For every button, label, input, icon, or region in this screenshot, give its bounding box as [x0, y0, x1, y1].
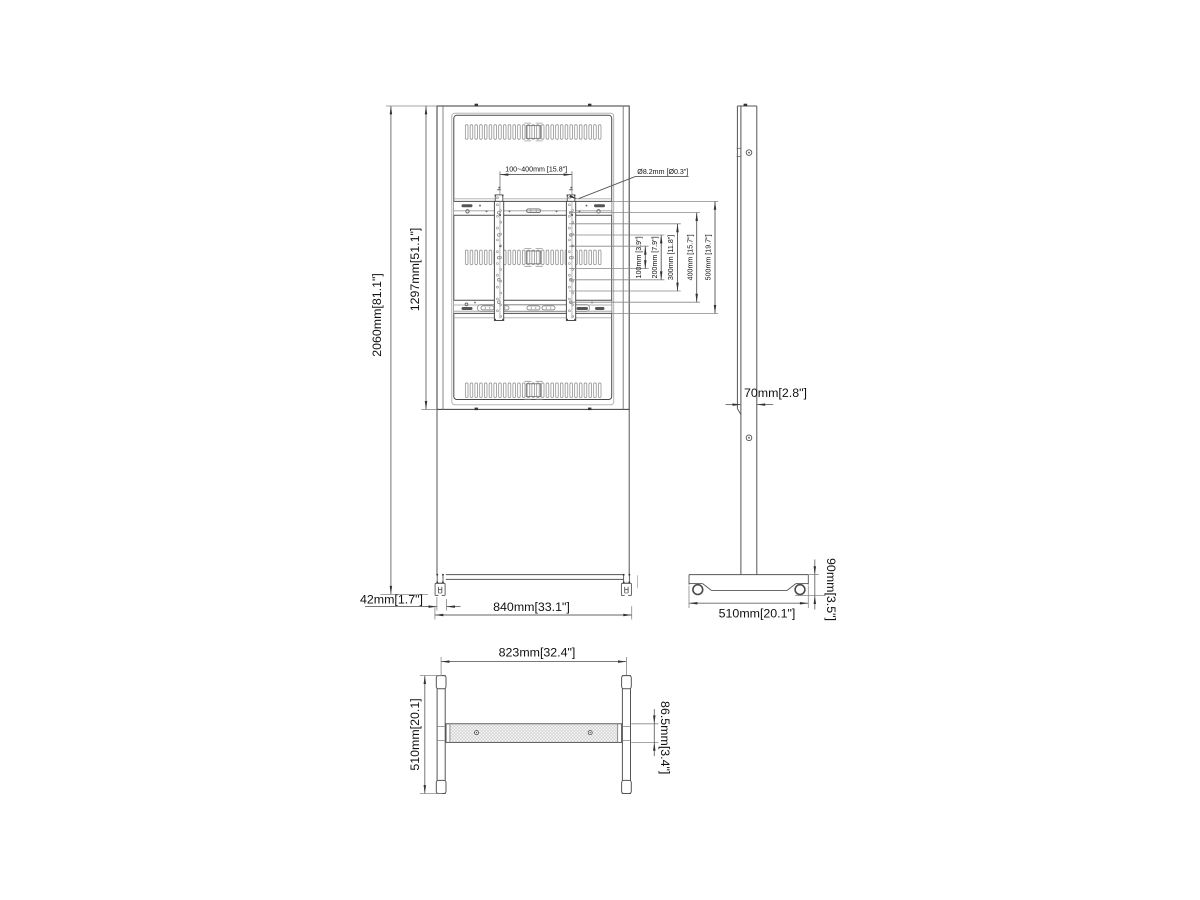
- svg-text:1297mm[51.1"]: 1297mm[51.1"]: [408, 228, 422, 312]
- svg-text:200mm [7.9"]: 200mm [7.9"]: [651, 236, 659, 278]
- svg-text:400mm [15.7"]: 400mm [15.7"]: [686, 234, 694, 280]
- svg-text:510mm[20.1]: 510mm[20.1]: [408, 698, 422, 770]
- svg-text:500mm [19.7"]: 500mm [19.7"]: [705, 234, 713, 280]
- svg-text:510mm[20.1"]: 510mm[20.1"]: [719, 606, 796, 620]
- svg-text:Ø8.2mm [Ø0.3"]: Ø8.2mm [Ø0.3"]: [637, 168, 688, 176]
- svg-text:2060mm[81.1"]: 2060mm[81.1"]: [370, 273, 384, 357]
- svg-text:100~400mm [15.8"]: 100~400mm [15.8"]: [505, 166, 567, 174]
- svg-text:42mm[1.7"]: 42mm[1.7"]: [360, 592, 423, 606]
- svg-text:86.5mm[3.4"]: 86.5mm[3.4"]: [658, 701, 672, 774]
- svg-text:840mm[33.1"]: 840mm[33.1"]: [493, 600, 570, 614]
- svg-text:100mm [3.9"]: 100mm [3.9"]: [635, 236, 643, 278]
- svg-text:90mm[3.5"]: 90mm[3.5"]: [824, 558, 838, 621]
- svg-text:70mm[2.8"]: 70mm[2.8"]: [744, 386, 807, 400]
- svg-text:823mm[32.4"]: 823mm[32.4"]: [499, 646, 576, 660]
- svg-text:300mm [11.8"]: 300mm [11.8"]: [667, 235, 675, 280]
